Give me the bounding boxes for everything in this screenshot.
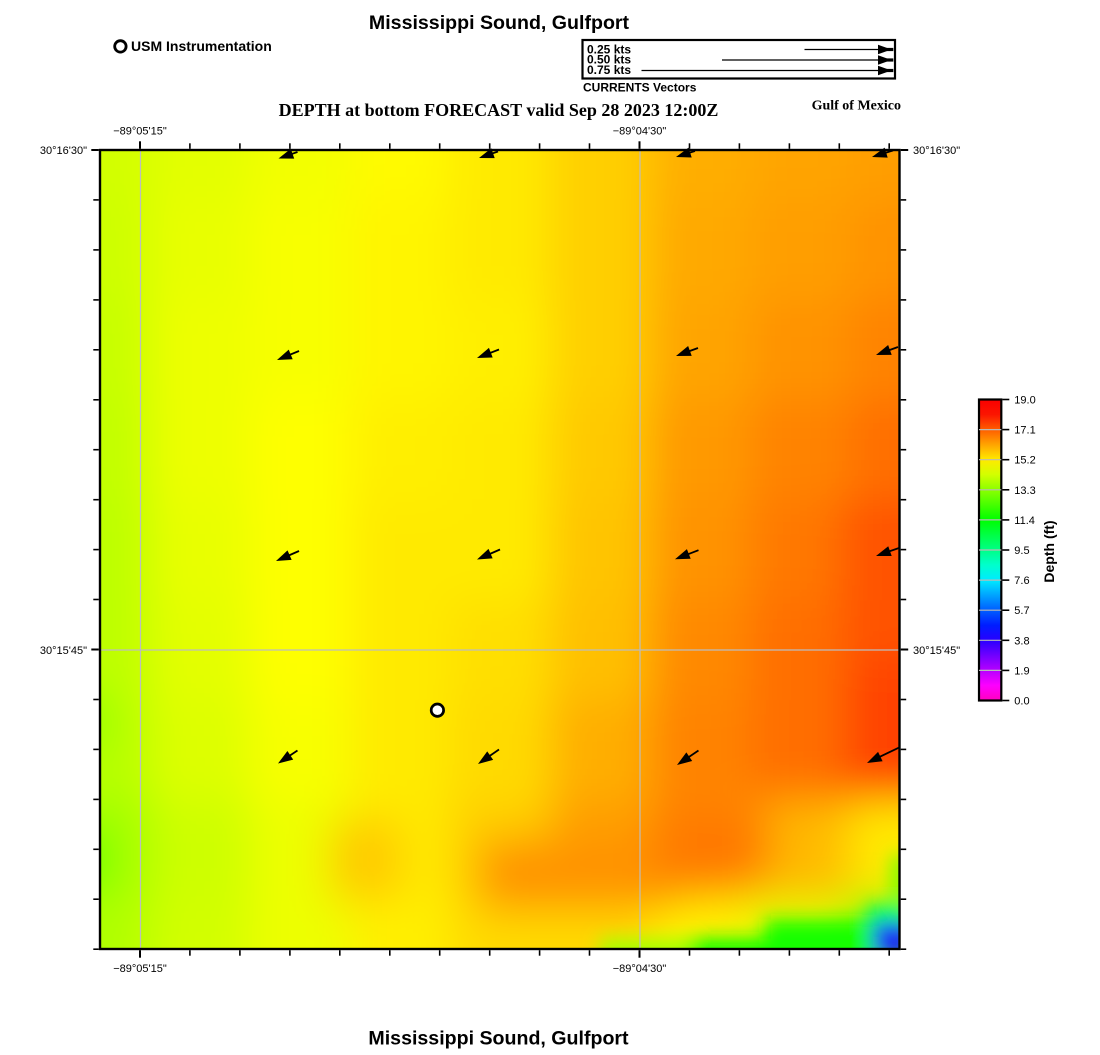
svg-text:19.0: 19.0	[1014, 395, 1035, 407]
svg-text:9.5: 9.5	[1014, 545, 1029, 557]
svg-text:USM Instrumentation: USM Instrumentation	[131, 38, 272, 54]
svg-text:3.8: 3.8	[1014, 635, 1029, 647]
svg-text:30°16'30": 30°16'30"	[40, 145, 87, 157]
svg-text:30°16'30": 30°16'30"	[913, 145, 960, 157]
svg-text:7.6: 7.6	[1014, 575, 1029, 587]
svg-text:Gulf of Mexico: Gulf of Mexico	[812, 99, 901, 114]
svg-text:5.7: 5.7	[1014, 605, 1029, 617]
svg-text:30°15'45": 30°15'45"	[913, 645, 960, 657]
svg-text:15.2: 15.2	[1014, 455, 1035, 467]
svg-text:Depth (ft): Depth (ft)	[1041, 520, 1057, 582]
svg-text:Mississippi Sound, Gulfport: Mississippi Sound, Gulfport	[368, 1028, 629, 1050]
svg-text:1.9: 1.9	[1014, 665, 1029, 677]
svg-text:−89°04'30": −89°04'30"	[613, 126, 667, 138]
svg-text:−89°05'15": −89°05'15"	[113, 126, 167, 138]
svg-text:30°15'45": 30°15'45"	[40, 645, 87, 657]
svg-text:CURRENTS Vectors: CURRENTS Vectors	[583, 81, 697, 95]
svg-text:0.75 kts: 0.75 kts	[587, 63, 631, 77]
svg-text:0.0: 0.0	[1014, 696, 1029, 708]
svg-text:Mississippi Sound, Gulfport: Mississippi Sound, Gulfport	[369, 12, 630, 34]
svg-text:DEPTH at bottom FORECAST valid: DEPTH at bottom FORECAST valid Sep 28 20…	[279, 100, 719, 120]
svg-text:−89°04'30": −89°04'30"	[613, 963, 667, 975]
svg-text:13.3: 13.3	[1014, 485, 1035, 497]
svg-text:11.4: 11.4	[1014, 515, 1035, 527]
svg-text:17.1: 17.1	[1014, 425, 1035, 437]
svg-text:−89°05'15": −89°05'15"	[113, 963, 167, 975]
